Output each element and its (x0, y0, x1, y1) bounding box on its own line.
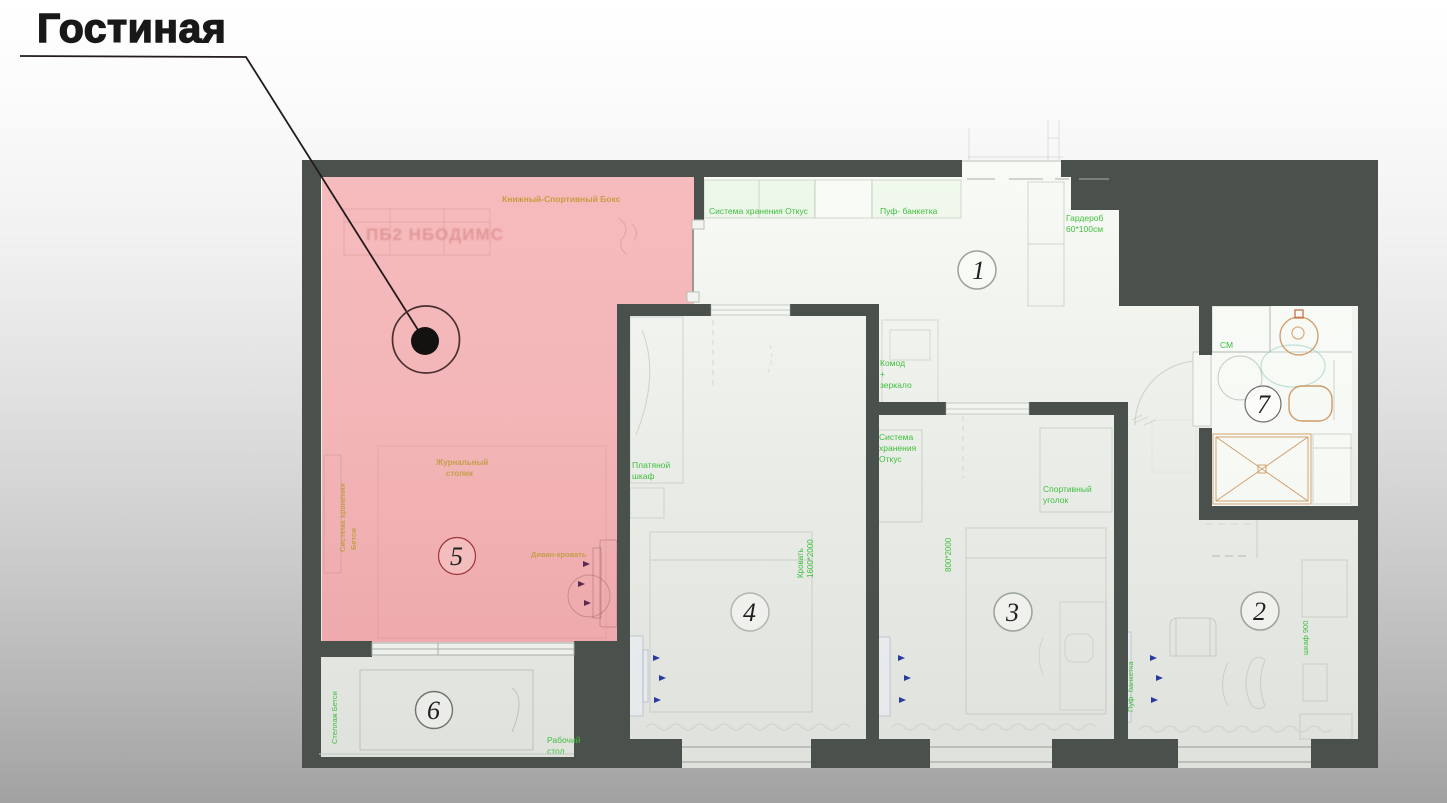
svg-text:Диван-кровать: Диван-кровать (531, 550, 587, 559)
svg-text:столик: столик (446, 469, 474, 478)
svg-text:3: 3 (1005, 598, 1019, 627)
svg-text:Бетси: Бетси (349, 528, 358, 550)
svg-text:+: + (880, 369, 885, 379)
svg-text:Спортивный: Спортивный (1043, 484, 1092, 494)
svg-text:7: 7 (1257, 390, 1271, 419)
svg-text:Пуф- банкетка: Пуф- банкетка (880, 206, 938, 216)
svg-text:ПБ2 НБОДИМС: ПБ2 НБОДИМС (366, 225, 504, 244)
svg-text:Система хранения Откус: Система хранения Откус (709, 206, 809, 216)
svg-text:4: 4 (743, 598, 756, 627)
svg-text:Откус: Откус (879, 454, 902, 464)
svg-text:6: 6 (427, 696, 440, 725)
svg-text:Стеллаж Бетси: Стеллаж Бетси (330, 691, 339, 744)
svg-text:СМ: СМ (1220, 340, 1233, 350)
svg-text:зеркало: зеркало (880, 380, 912, 390)
svg-text:Гардероб: Гардероб (1066, 213, 1104, 223)
svg-text:хранения: хранения (879, 443, 917, 453)
svg-text:Кровать: Кровать (796, 548, 805, 578)
svg-text:Система хранения: Система хранения (338, 483, 347, 552)
svg-text:уголок: уголок (1043, 495, 1068, 505)
svg-text:60*100см: 60*100см (1066, 224, 1103, 234)
svg-text:Платяной: Платяной (632, 460, 671, 470)
svg-text:1: 1 (972, 256, 985, 285)
svg-text:2: 2 (1253, 597, 1266, 626)
svg-text:5: 5 (450, 542, 463, 571)
svg-text:Книжный-Спортивный Бокс: Книжный-Спортивный Бокс (502, 194, 621, 204)
svg-text:Система: Система (879, 432, 914, 442)
svg-text:Журнальный: Журнальный (435, 458, 488, 467)
svg-text:шкаф: шкаф (632, 471, 654, 481)
svg-text:шкаф 900: шкаф 900 (1301, 621, 1310, 655)
svg-text:Рабочий: Рабочий (547, 735, 581, 745)
svg-text:800*2000: 800*2000 (944, 537, 953, 572)
svg-text:Комод: Комод (880, 358, 905, 368)
svg-text:1600*2000: 1600*2000 (806, 539, 815, 578)
